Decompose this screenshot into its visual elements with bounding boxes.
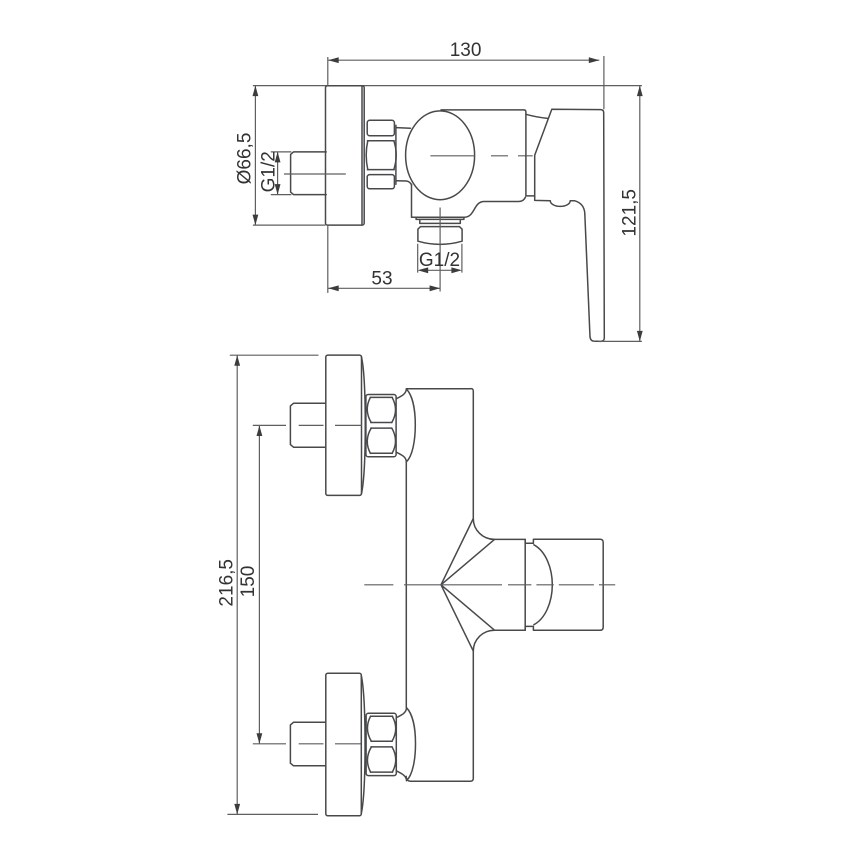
svg-text:53: 53 <box>371 268 392 289</box>
svg-text:130: 130 <box>450 40 482 61</box>
svg-text:Ø66,5: Ø66,5 <box>235 133 256 185</box>
svg-text:216,5: 216,5 <box>217 559 238 607</box>
svg-text:G1/2: G1/2 <box>259 151 280 192</box>
svg-text:150: 150 <box>238 566 259 598</box>
svg-text:G1/2: G1/2 <box>419 250 460 271</box>
svg-text:121,5: 121,5 <box>620 189 641 237</box>
